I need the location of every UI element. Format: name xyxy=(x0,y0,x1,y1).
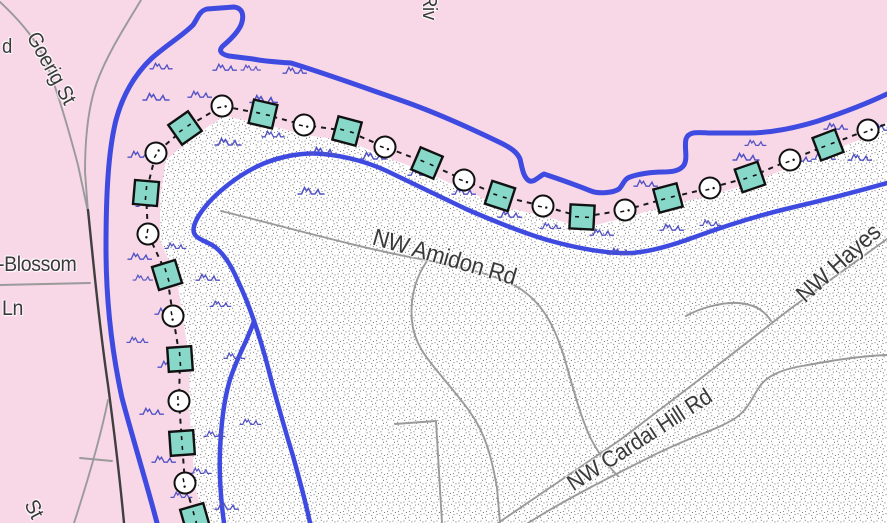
wave-icon xyxy=(143,94,169,101)
levee-square-icon xyxy=(133,180,159,206)
road-branch-connector xyxy=(80,458,112,461)
wave-icon xyxy=(188,91,211,97)
wave-icon xyxy=(127,337,148,342)
map-viewport: dGoerig St-BlossomLnRivNW Amidon RdNW Ca… xyxy=(0,0,887,523)
wave-icon xyxy=(733,154,759,161)
levee-square-icon xyxy=(167,346,193,372)
levee-square-icon xyxy=(569,204,594,229)
levee-circle-icon xyxy=(168,390,190,412)
levee-square-icon xyxy=(249,100,278,129)
road-upper-left xyxy=(0,2,88,212)
map-canvas xyxy=(0,0,887,523)
levee-circle-icon xyxy=(210,94,234,118)
levee-circle-icon xyxy=(136,222,160,246)
road-branch-sw xyxy=(74,400,108,523)
wave-icon xyxy=(140,408,163,414)
wave-icon xyxy=(152,456,175,462)
road-blossom-ln xyxy=(0,283,90,285)
wave-icon xyxy=(241,65,261,70)
wave-icon xyxy=(150,63,172,69)
wave-icon xyxy=(634,180,657,186)
wave-icon xyxy=(745,140,766,145)
wave-icon xyxy=(213,64,236,70)
wave-icon xyxy=(133,275,153,280)
road-goerig-st xyxy=(85,0,141,212)
levee-square-icon xyxy=(169,430,195,456)
wave-icon xyxy=(128,253,151,259)
levee-square-icon xyxy=(152,260,182,290)
levee-square-icon xyxy=(332,116,361,145)
levee-square-icon xyxy=(653,183,682,212)
